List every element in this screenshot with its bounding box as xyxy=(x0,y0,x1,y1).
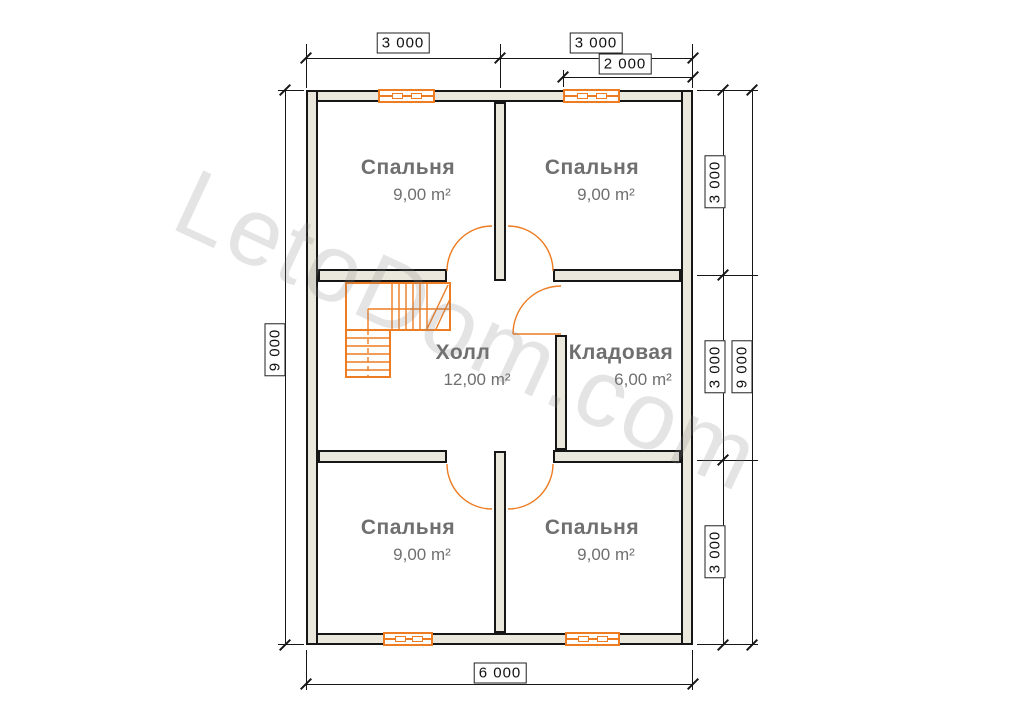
dim-top-left-span: 3 000 xyxy=(377,33,430,54)
window-bottom-right xyxy=(565,632,620,646)
room-name: Спальня xyxy=(507,156,677,180)
wall-top xyxy=(306,90,693,102)
wall-hall-top-left xyxy=(318,269,447,282)
window-glazing-line xyxy=(565,95,618,97)
door-arc-bedroom-bottom-left xyxy=(447,464,492,509)
door-arc-bedroom-bottom-right xyxy=(508,464,553,509)
stair-treads-upper xyxy=(392,283,427,330)
room-label-bedroom-bottom-right: Спальня 9,00 m² xyxy=(507,516,677,565)
room-label-storage: Кладовая 6,00 m² xyxy=(536,341,706,390)
window-glass-box xyxy=(411,93,422,99)
door-arc-bedroom-top-left xyxy=(447,226,492,271)
window-glazing-line xyxy=(385,638,431,640)
wall-divider-bottom-bedrooms xyxy=(494,451,506,633)
door-arc-bedroom-top-right xyxy=(508,226,553,271)
door-arc-storage xyxy=(513,286,561,334)
wall-hall-bottom-left xyxy=(318,450,447,463)
dim-top-right-span: 3 000 xyxy=(570,33,623,54)
window-glass-box xyxy=(395,636,406,642)
room-label-hall: Холл 12,00 m² xyxy=(378,341,548,390)
room-label-bedroom-bottom-left: Спальня 9,00 m² xyxy=(323,516,493,565)
wall-left xyxy=(306,90,318,645)
dim-right-segment-2: 3 000 xyxy=(705,341,726,394)
room-area: 9,00 m² xyxy=(521,545,691,565)
room-name: Спальня xyxy=(323,516,493,540)
extension-line xyxy=(563,70,564,87)
stair-flight-upper xyxy=(346,283,450,330)
dim-top-sub-span: 2 000 xyxy=(599,54,652,75)
dim-right-segment-1: 3 000 xyxy=(705,156,726,209)
window-top-right xyxy=(563,89,620,103)
wall-hall-bottom-right xyxy=(553,450,681,463)
extension-line xyxy=(500,44,501,88)
dimension-line-bottom xyxy=(306,684,693,685)
extension-line xyxy=(306,44,307,88)
window-glass-box xyxy=(392,93,403,99)
window-glass-box xyxy=(597,636,608,642)
extension-line xyxy=(697,460,758,461)
extension-line xyxy=(692,44,693,88)
window-glass-box xyxy=(596,93,607,99)
room-area: 9,00 m² xyxy=(521,185,691,205)
stair-inner-rail xyxy=(368,309,450,330)
window-glass-box xyxy=(412,636,423,642)
extension-line xyxy=(697,275,758,276)
dim-bottom-total: 6 000 xyxy=(474,663,527,684)
dim-left-total: 9 000 xyxy=(265,324,286,377)
stair-break-lines xyxy=(427,285,450,329)
room-label-bedroom-top-left: Спальня 9,00 m² xyxy=(323,156,493,205)
window-bottom-left xyxy=(383,632,433,646)
window-top-left xyxy=(378,89,435,103)
floor-plan-canvas: Спальня 9,00 m² Спальня 9,00 m² Холл 12,… xyxy=(0,0,1018,720)
room-name: Спальня xyxy=(323,156,493,180)
window-glass-box xyxy=(577,93,588,99)
room-area: 9,00 m² xyxy=(337,185,507,205)
dimension-line-top-sub xyxy=(563,77,693,78)
room-label-bedroom-top-right: Спальня 9,00 m² xyxy=(507,156,677,205)
room-area: 6,00 m² xyxy=(558,370,728,390)
room-name: Холл xyxy=(378,341,548,365)
room-area: 9,00 m² xyxy=(337,545,507,565)
dim-right-segment-3: 3 000 xyxy=(705,526,726,579)
wall-bottom xyxy=(306,633,693,645)
window-glass-box xyxy=(578,636,589,642)
window-glazing-line xyxy=(567,638,618,640)
dim-right-total: 9 000 xyxy=(732,341,753,394)
wall-hall-top-right xyxy=(553,269,681,282)
room-name: Спальня xyxy=(507,516,677,540)
room-name: Кладовая xyxy=(536,341,706,365)
window-glazing-line xyxy=(380,95,433,97)
